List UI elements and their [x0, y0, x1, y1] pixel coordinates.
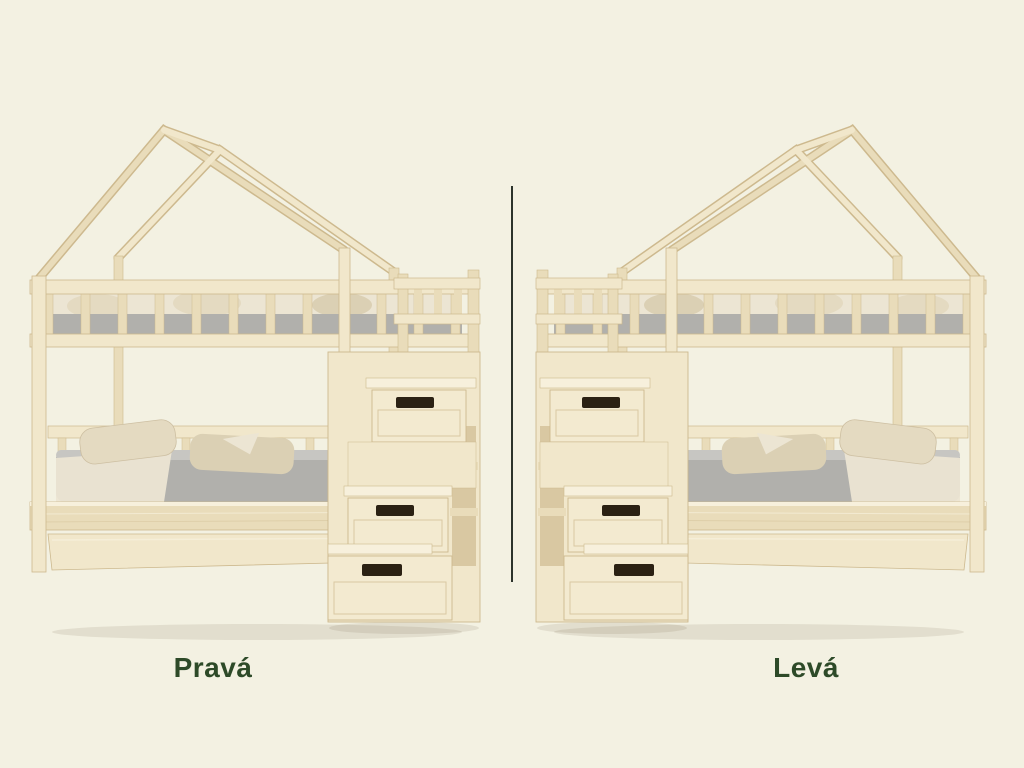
divider-line — [511, 186, 513, 582]
bed-photo-variant-leva — [534, 110, 994, 650]
bed-photo-variant-prava — [22, 110, 482, 650]
variant-label-leva: Levá — [773, 652, 839, 684]
variant-label-prava: Pravá — [174, 652, 253, 684]
